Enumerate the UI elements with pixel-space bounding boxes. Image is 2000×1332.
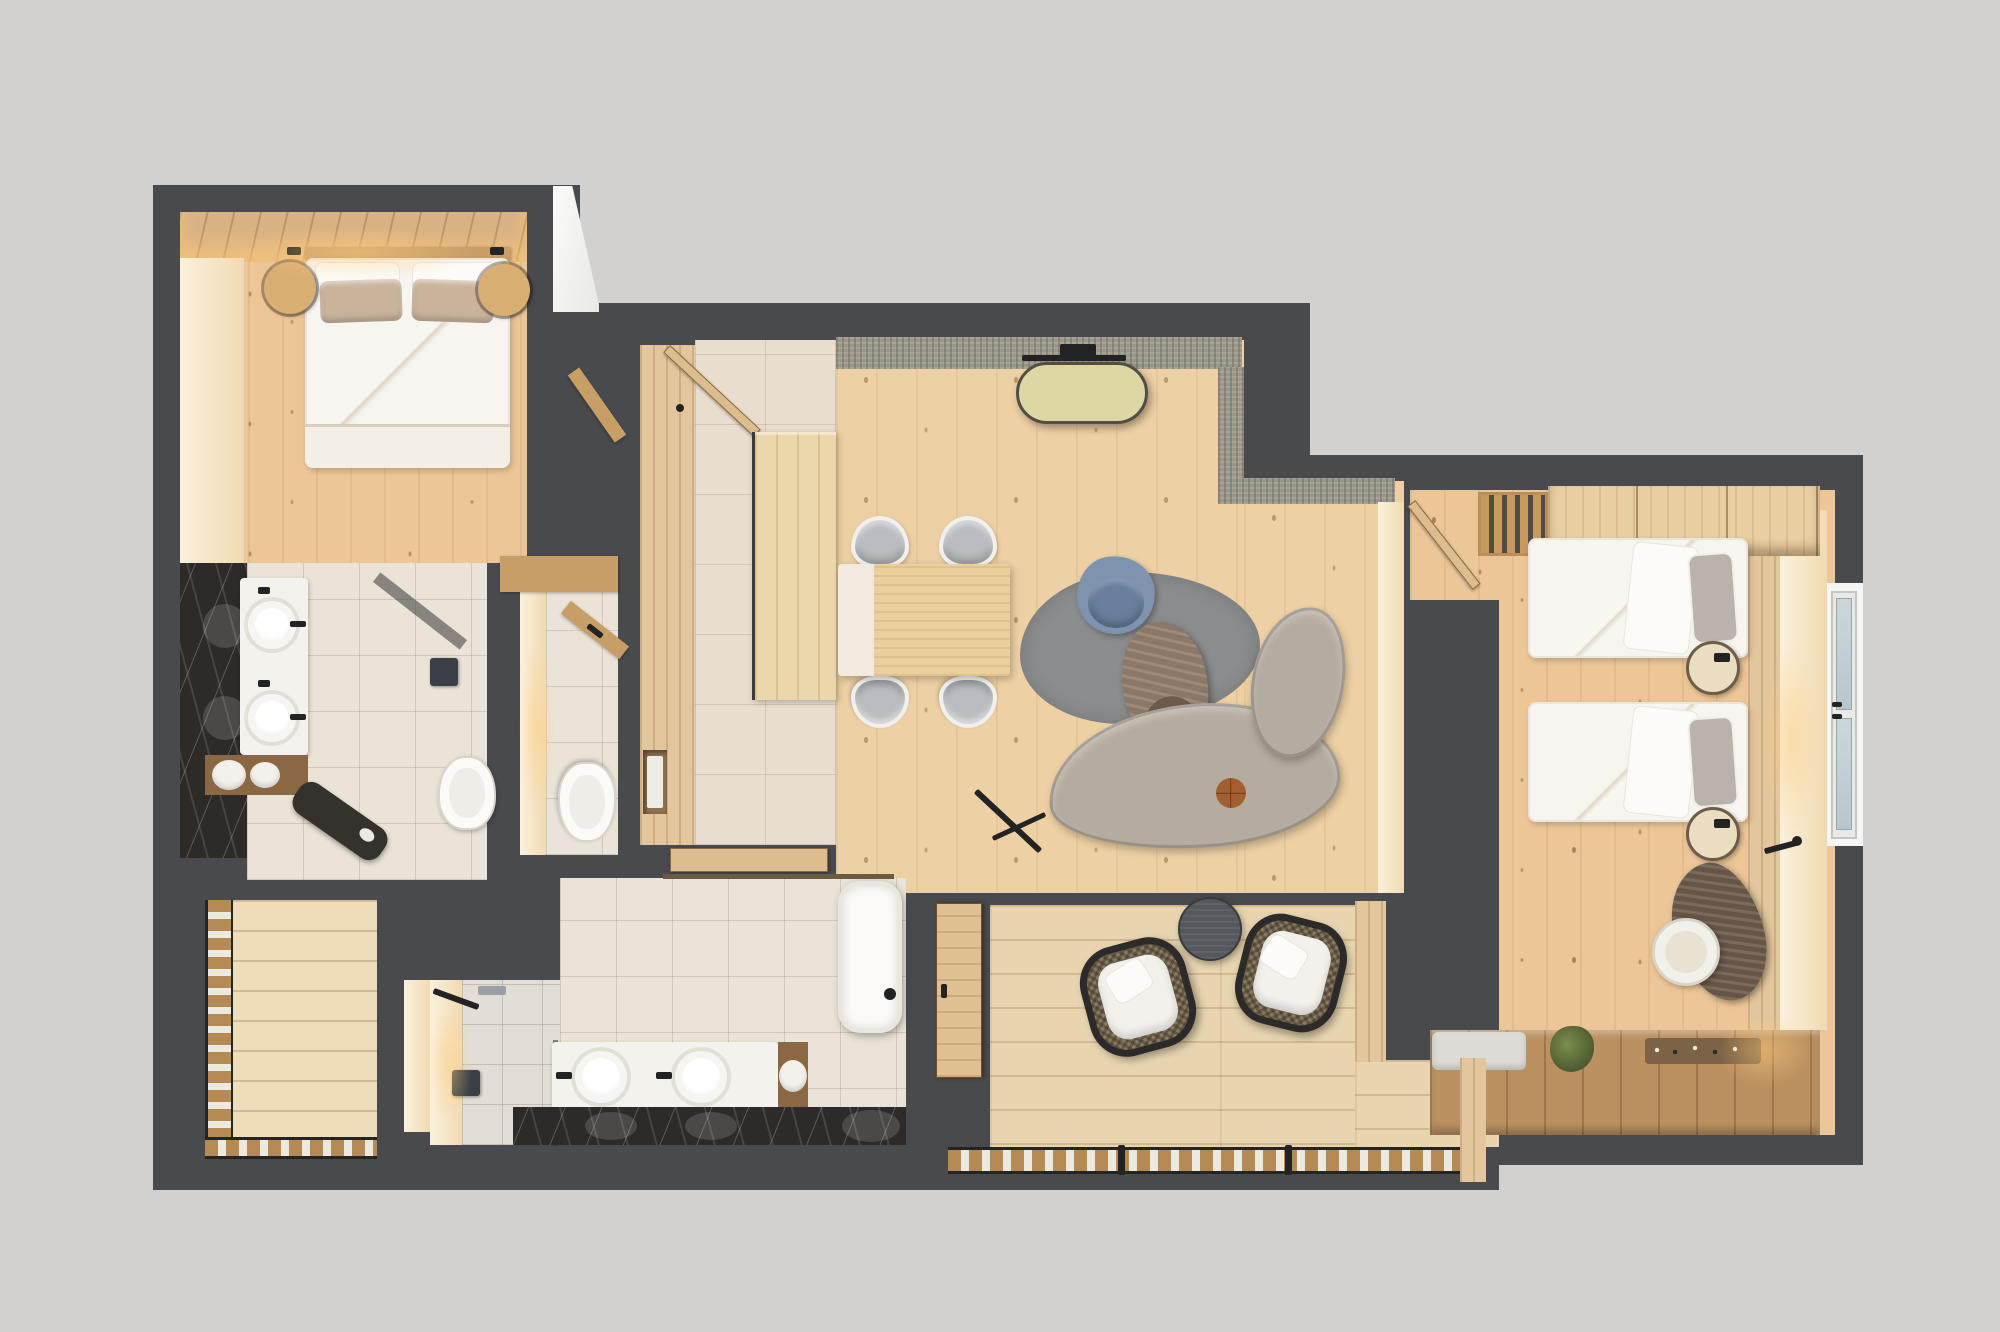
ledge-reflection-1 [585, 1112, 637, 1140]
bath1-towel-1 [212, 760, 246, 790]
bath2-door-rail [663, 874, 894, 879]
terrace-side-table [1178, 897, 1242, 961]
kids-stool-1 [1686, 641, 1740, 695]
bath2-towel [779, 1060, 807, 1092]
bath1-tap-1 [258, 587, 270, 594]
bath2-shower-mixer [452, 1070, 480, 1096]
ledge-reflection-2 [685, 1112, 737, 1140]
railing-post-2 [1285, 1145, 1292, 1175]
terrace-partition [1355, 901, 1386, 1062]
entry-door-handle [676, 404, 684, 412]
doorway-jamb [1378, 502, 1404, 893]
kids-bed-2-pillow-gray [1687, 716, 1739, 809]
tv-mount [1060, 344, 1096, 357]
bench-tray [1645, 1038, 1761, 1064]
terrace-door-handle [941, 984, 947, 998]
stone-wall-step [1218, 478, 1395, 504]
kids-wall-jog [1410, 600, 1499, 1062]
wall-lamp-right [490, 247, 504, 255]
bath2-tap-1 [556, 1072, 572, 1079]
bath2-lit-wall [404, 980, 430, 1132]
bath2-sink-2 [671, 1047, 731, 1107]
sofa-ball [1216, 778, 1246, 808]
wc-lit-wall [520, 592, 546, 855]
bath2-tap-2 [656, 1072, 672, 1079]
ledge-reflection-3 [842, 1110, 900, 1142]
wall-lamp-left [287, 247, 301, 255]
balcony-railing-south [205, 1137, 377, 1159]
bath1-spout-2 [290, 714, 306, 720]
bedroom-lit-wall [180, 258, 244, 563]
tub-faucet [884, 988, 896, 1000]
shower2-lit-wall [430, 980, 462, 1145]
window-handle-1 [1832, 702, 1842, 707]
hall-closet-niche [643, 750, 667, 814]
nightstand-right [478, 264, 530, 316]
bath2-sink-1 [571, 1047, 631, 1107]
kids-stool-2 [1686, 807, 1740, 861]
bath1-shower-mixer [430, 658, 458, 686]
armchair-blue-seat [1088, 578, 1144, 628]
bath1-towel-2 [250, 762, 280, 788]
balcony-floor [233, 900, 377, 1137]
hall-wardrobe [752, 432, 836, 700]
media-console [1016, 362, 1148, 424]
bath2-sliding-door [670, 848, 828, 872]
window-glass-upper [1836, 598, 1852, 710]
bedroom-low-shelf [500, 556, 618, 592]
terrace-railing [948, 1147, 1460, 1174]
bed-pillow-tan-left [319, 279, 402, 324]
kids-lamp-1 [1714, 653, 1730, 662]
marble-reflection-2 [203, 696, 247, 740]
bath1-spout-1 [290, 621, 306, 627]
wc-toilet [558, 762, 616, 842]
kids-lamp-2 [1714, 819, 1730, 828]
window-handle-2 [1832, 714, 1842, 719]
railing-post-1 [1118, 1145, 1125, 1175]
nightstand-left [264, 262, 316, 314]
floor-plan [0, 0, 2000, 1332]
kids-lit-wall [1780, 510, 1827, 1030]
window-glass-lower [1836, 718, 1852, 830]
terrace-partition-2 [1460, 1058, 1486, 1182]
wall-cut-white [553, 186, 599, 312]
kids-desk-chair [1652, 918, 1720, 986]
bath2-bottles [478, 986, 506, 995]
kids-wall-lamp [1792, 836, 1802, 846]
kids-bed-1-pillow-gray [1687, 552, 1739, 645]
marble-reflection-1 [203, 604, 247, 648]
bed-foot-throw [305, 424, 510, 468]
bath1-toilet [438, 756, 496, 830]
table-runner [838, 564, 874, 676]
bath1-tap-2 [258, 680, 270, 687]
balcony-railing-west [205, 900, 233, 1140]
bathtub [838, 881, 902, 1033]
